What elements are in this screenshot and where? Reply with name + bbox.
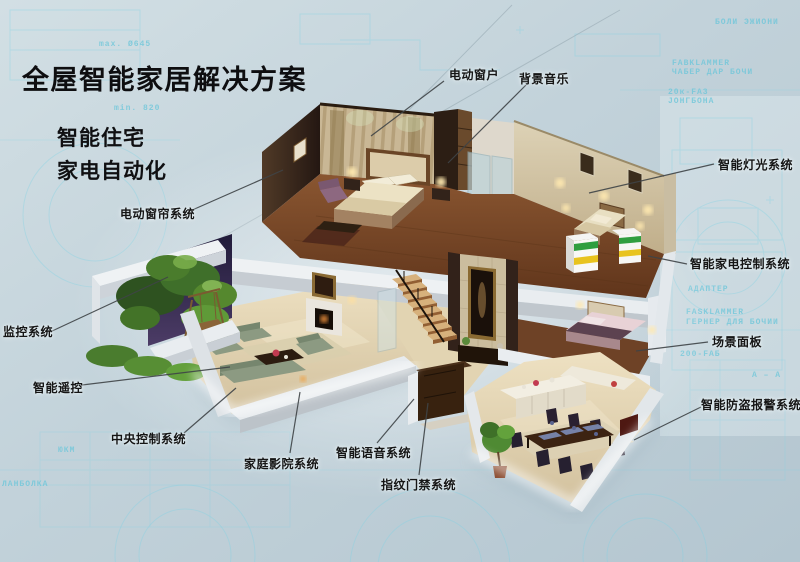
callout-burglar-alarm: 智能防盗报警系统	[701, 396, 800, 413]
blueprint-text: min. 820	[114, 104, 160, 113]
blueprint-text: БОЛИ ЭЖИОНИ	[715, 18, 779, 27]
blueprint-text: 20к-FA3	[668, 88, 709, 97]
callout-background-music: 背景音乐	[519, 70, 569, 87]
blueprint-text: A – A	[752, 371, 781, 380]
blueprint-text: ЛАНБОЛКА	[2, 480, 48, 489]
page-title: 全屋智能家居解决方案	[22, 58, 307, 97]
blueprint-text: JÖHГБОНА	[668, 97, 714, 106]
callout-appliance-control: 智能家电控制系统	[690, 255, 790, 272]
blueprint-text: max. Ø645	[99, 40, 151, 49]
blueprint-text: ЮКМ	[58, 446, 75, 455]
callout-central-control: 中央控制系统	[111, 430, 186, 447]
callout-smart-remote: 智能遥控	[33, 379, 83, 396]
bathroom	[468, 118, 514, 206]
callout-electric-window: 电动窗户	[449, 66, 499, 83]
callout-scene-panel: 场景面板	[712, 333, 762, 350]
subtitle-line-2: 家电自动化	[57, 155, 167, 188]
page-subtitle: 智能住宅 家电自动化	[57, 122, 167, 188]
foyer	[448, 252, 518, 366]
callout-electric-curtain: 电动窗帘系统	[120, 205, 195, 222]
blueprint-text: ЧАБЕР ДАР БОЧИ	[672, 68, 753, 77]
subtitle-line-1: 智能住宅	[57, 122, 167, 155]
smart-home-infographic: max. Ø645min. 820БОЛИ ЭЖИОНИFABKLAMMERЧА…	[0, 0, 800, 562]
callout-smart-lighting: 智能灯光系统	[718, 156, 793, 173]
blueprint-text: FABKLAMMER	[672, 59, 730, 68]
callout-monitoring-system: 监控系统	[3, 323, 53, 340]
callout-voice-system: 智能语音系统	[336, 444, 411, 461]
callout-home-theater: 家庭影院系统	[244, 455, 319, 472]
callout-fingerprint-access: 指纹门禁系统	[381, 476, 456, 493]
